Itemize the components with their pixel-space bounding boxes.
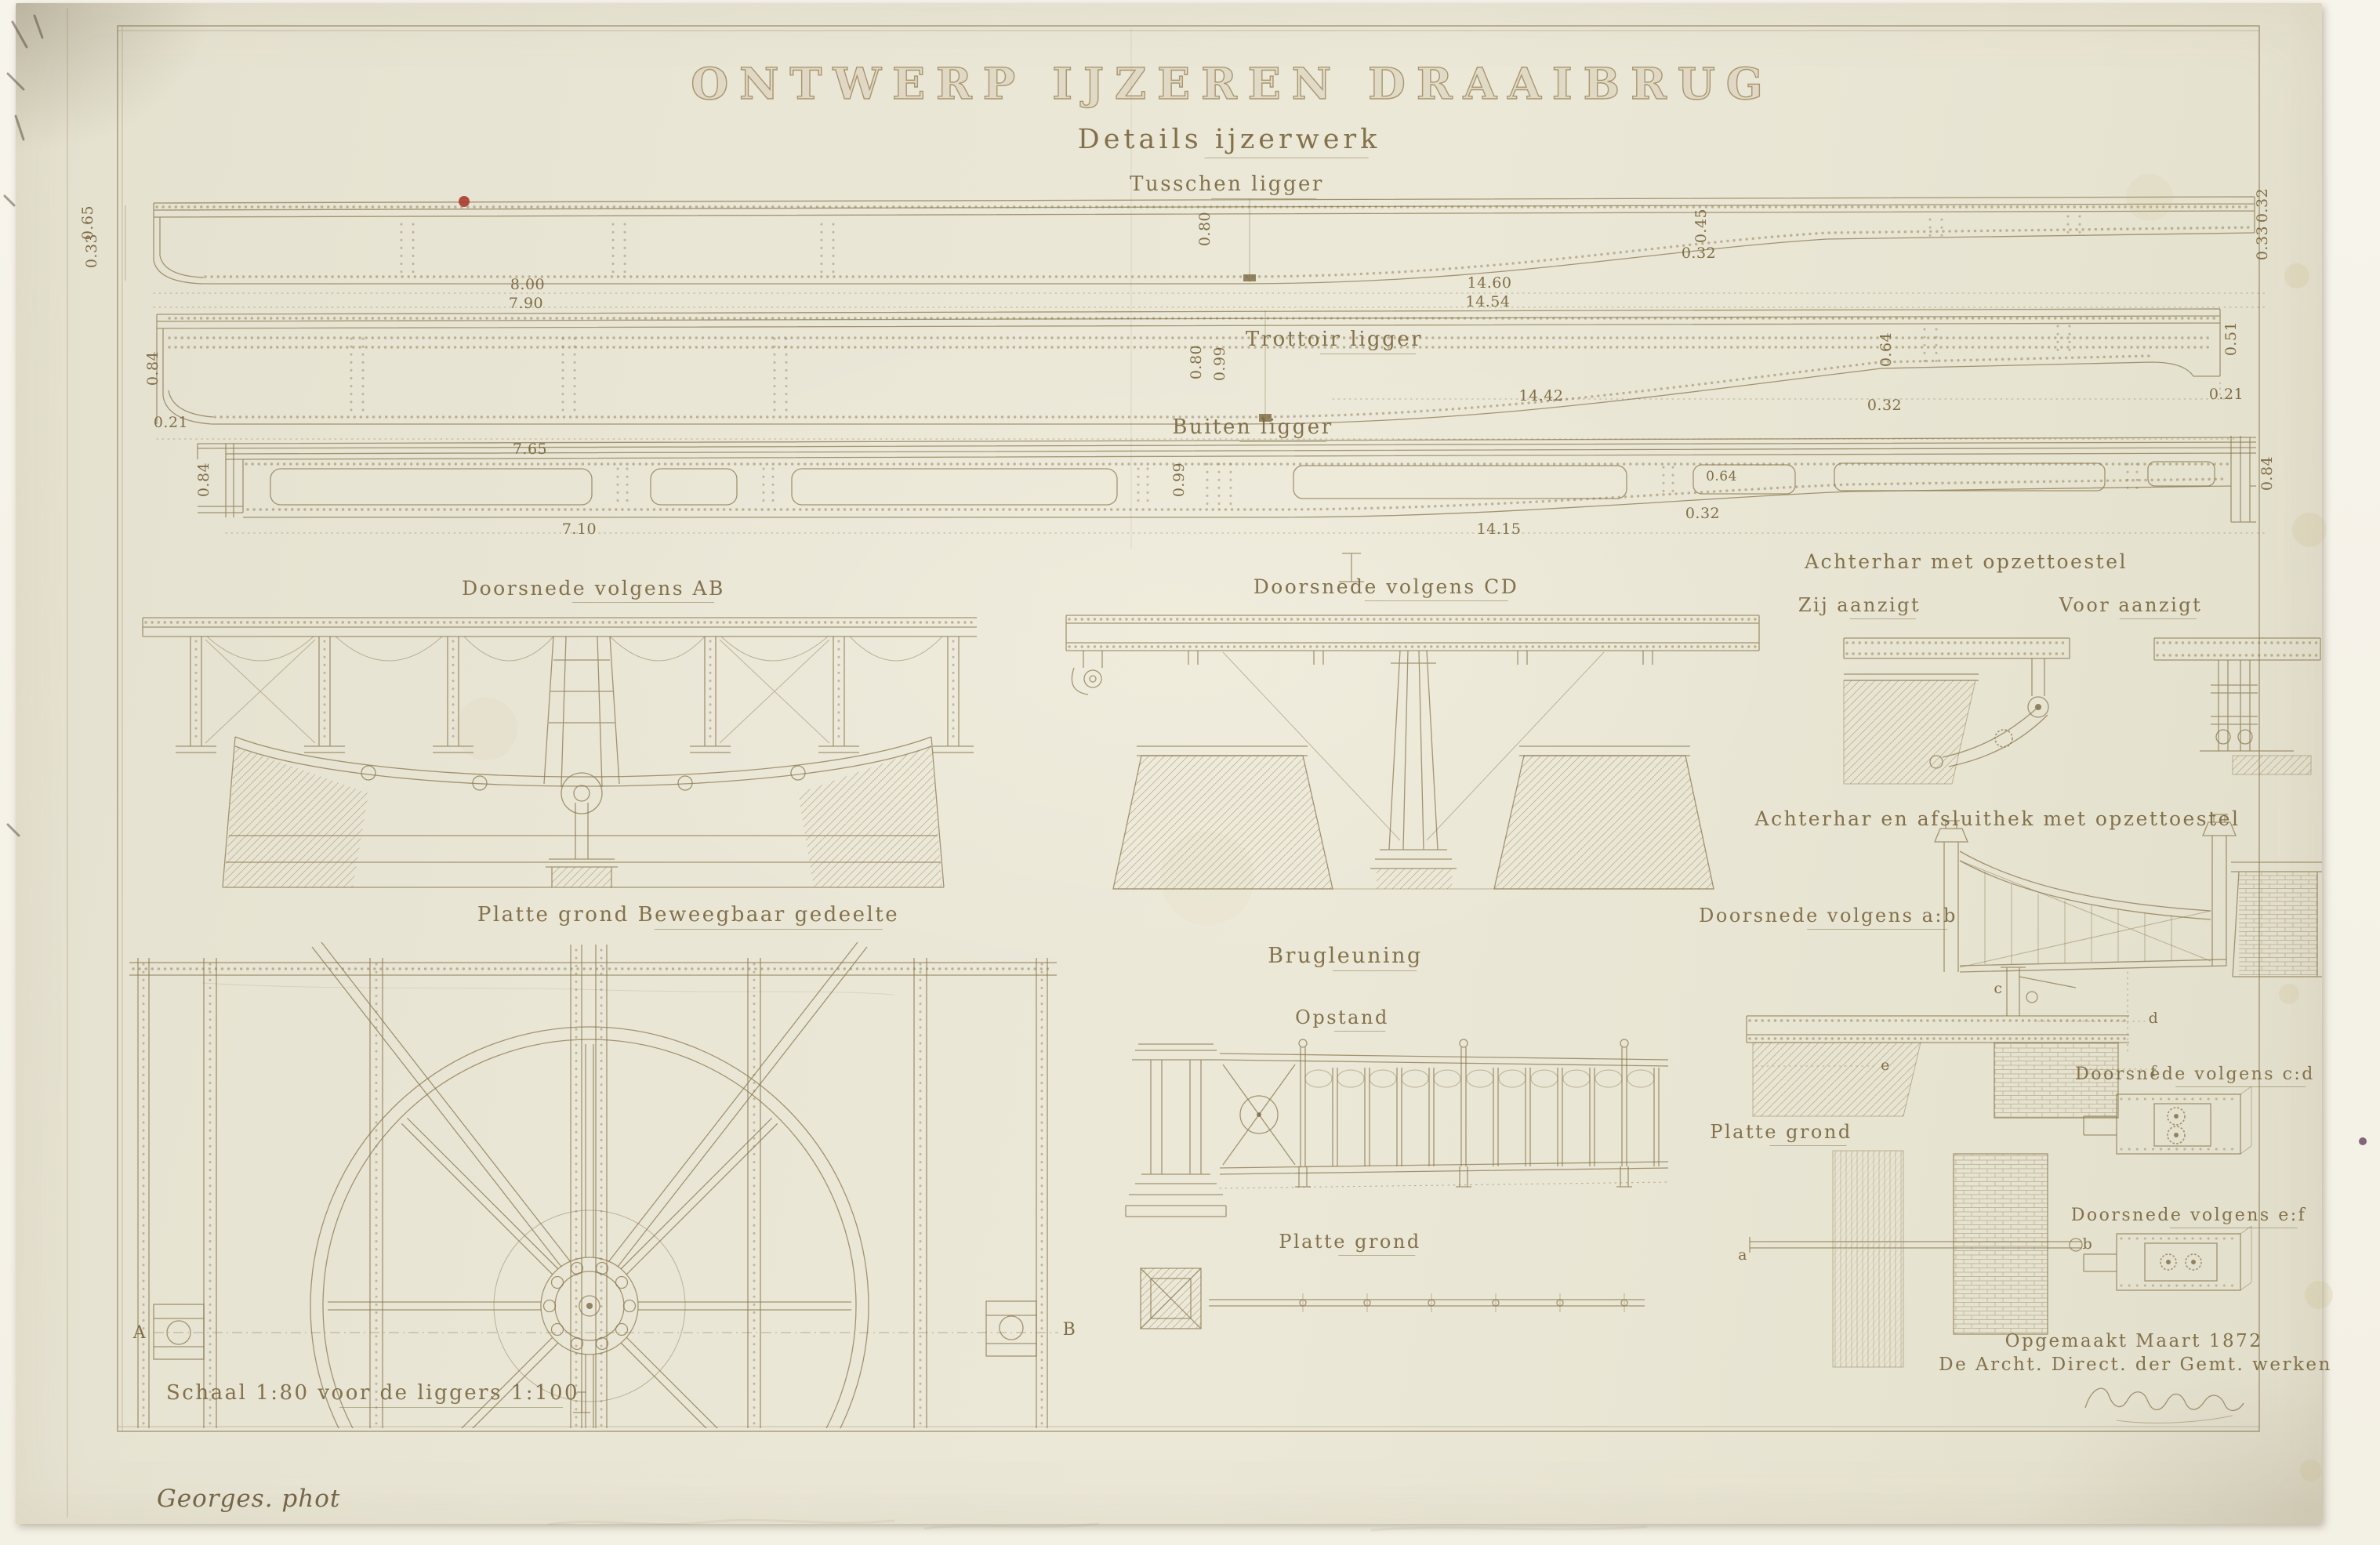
marker-A: A <box>133 1323 146 1343</box>
dim-label: 0.32 <box>1685 505 1720 522</box>
dim-label: 0.64 <box>1878 332 1895 367</box>
label-section-ef-small: Doorsnede volgens e:f <box>2071 1206 2307 1225</box>
red-ink-dot <box>459 196 470 207</box>
railing-drawing <box>1126 1039 1670 1329</box>
achterhar-zij-aanzigt-drawing <box>1844 638 2070 784</box>
linework-svg <box>0 0 2380 1545</box>
label-opstand: Opstand <box>1295 1006 1389 1028</box>
label-afsluithek: Achterhar en afsluithek met opzettoestel <box>1755 807 2240 830</box>
dim-label: 0.84 <box>144 351 161 386</box>
dim-label: 0.33 <box>83 234 100 268</box>
dim-label: 0.21 <box>154 414 188 431</box>
dim-label: 0.32 <box>1867 397 1902 414</box>
dim-label: 0.32 <box>1682 245 1716 262</box>
label-platte-grond-railing: Platte grond <box>1279 1231 1420 1253</box>
dim-label: 0.84 <box>195 462 212 497</box>
dim-label: 0.80 <box>1188 345 1205 379</box>
dim-label: 7.90 <box>509 295 543 312</box>
afsluithek-drawing <box>1935 814 2322 977</box>
dim-label: 0.84 <box>2258 456 2276 491</box>
dim-label: 0.51 <box>2222 321 2240 356</box>
label-tusschen-ligger: Tusschen ligger <box>1130 172 1324 196</box>
dim-label: 14.54 <box>1466 293 1511 310</box>
plan-beweegbaar-drawing <box>129 942 1058 1545</box>
page-title: ONTWERP IJZEREN DRAAIBRUG <box>691 58 1774 109</box>
architect-signature <box>2085 1388 2244 1410</box>
label-brugleuning: Brugleuning <box>1268 944 1423 968</box>
dim-label: 0.99 <box>1170 462 1188 497</box>
achterhar-voor-aanzigt-drawing <box>2154 638 2320 774</box>
label-plan-beweegbaar: Platte grond Beweegbaar gedeelte <box>477 903 899 927</box>
dim-label: 0.33 <box>2254 226 2271 260</box>
dim-label: 0.32 <box>2254 188 2271 223</box>
dim-label: 14.42 <box>1519 387 1564 404</box>
marker-d: d <box>2149 1010 2159 1027</box>
label-section-ab: Doorsnede volgens AB <box>462 577 725 600</box>
dim-label: 8.00 <box>510 276 545 293</box>
section-ef-small-drawing <box>2084 1226 2251 1290</box>
issuer-note: De Archt. Direct. der Gemt. werken <box>1939 1355 2332 1375</box>
dim-label: 14.15 <box>1477 520 1522 538</box>
label-achterhar: Achterhar met opzettoestel <box>1805 550 2128 573</box>
label-section-ab-small: Doorsnede volgens a:b <box>1699 905 1957 927</box>
tusschen-ligger-drawing <box>125 196 2266 307</box>
label-section-cd-small: Doorsnede volgens c:d <box>2075 1064 2315 1084</box>
marker-b: b <box>2083 1235 2093 1253</box>
date-note: Opgemaakt Maart 1872 <box>2005 1331 2263 1351</box>
scanned-drawing-page: ONTWERP IJZEREN DRAAIBRUG Details ijzerw… <box>0 0 2380 1545</box>
dim-label: 7.10 <box>562 520 597 538</box>
marker-a: a <box>1738 1246 1747 1264</box>
marker-c: c <box>1994 980 2002 997</box>
dim-label: 0.99 <box>1211 346 1228 381</box>
dim-label: 7.65 <box>513 441 547 458</box>
section-ab-drawing <box>143 618 977 887</box>
label-buiten-ligger: Buiten ligger <box>1172 415 1333 439</box>
purple-ink-dot <box>2359 1137 2367 1145</box>
marker-f: f <box>2150 1063 2157 1080</box>
section-ab-small-drawing <box>1747 967 2146 1118</box>
marker-B: B <box>1063 1320 1076 1340</box>
photographer-signature: Georges. phot <box>157 1485 340 1513</box>
dim-label: 0.80 <box>1196 212 1214 246</box>
label-section-cd: Doorsnede volgens CD <box>1253 575 1519 598</box>
label-trottoir-ligger: Trottoir ligger <box>1246 328 1423 351</box>
marker-e: e <box>1881 1057 1890 1074</box>
scale-note: Schaal 1:80 voor de liggers 1:100 <box>166 1381 579 1405</box>
label-voor-aanzigt: Voor aanzigt <box>2059 594 2203 616</box>
dim-label: 0.21 <box>2209 386 2244 403</box>
page-subtitle: Details ijzerwerk <box>1078 124 1381 155</box>
dim-label: 0.45 <box>1692 209 1710 243</box>
dim-label: 14.60 <box>1468 274 1512 292</box>
dim-label: 0.64 <box>1706 469 1737 484</box>
label-zij-aanzigt: Zij aanzigt <box>1798 594 1921 616</box>
label-platte-grond-right: Platte grond <box>1710 1121 1852 1143</box>
section-cd-drawing <box>1066 615 1759 889</box>
